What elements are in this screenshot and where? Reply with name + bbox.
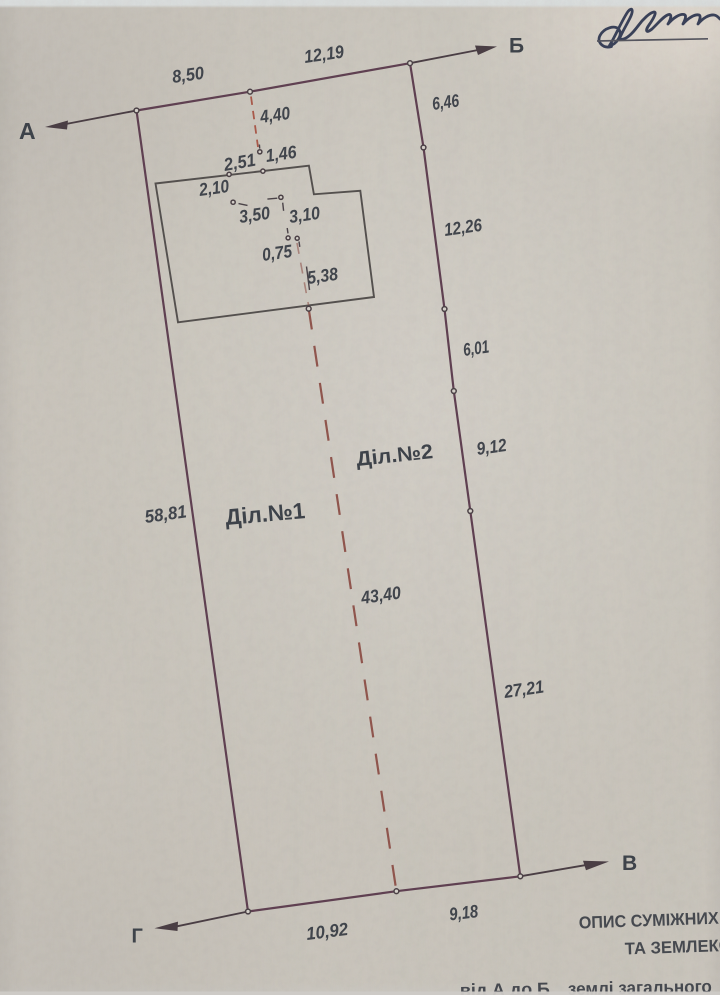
svg-text:ТА ЗЕМЛЕКОР: ТА ЗЕМЛЕКОР xyxy=(624,935,720,958)
svg-text:8,50: 8,50 xyxy=(171,63,205,87)
svg-text:Г: Г xyxy=(132,926,143,948)
svg-text:5,38: 5,38 xyxy=(306,264,339,288)
svg-text:10,92: 10,92 xyxy=(305,919,349,944)
svg-text:27,21: 27,21 xyxy=(502,677,545,702)
svg-text:Діл.№1: Діл.№1 xyxy=(224,498,306,530)
svg-text:6,01: 6,01 xyxy=(462,337,491,360)
svg-text:9,18: 9,18 xyxy=(448,901,479,924)
svg-text:43,40: 43,40 xyxy=(359,583,402,608)
svg-text:А: А xyxy=(19,118,36,144)
svg-text:Б: Б xyxy=(509,35,524,58)
svg-text:4,40: 4,40 xyxy=(258,103,291,127)
svg-text:12,19: 12,19 xyxy=(303,42,345,67)
svg-text:9,12: 9,12 xyxy=(475,435,507,459)
svg-text:1,46: 1,46 xyxy=(264,142,298,166)
svg-text:2,51: 2,51 xyxy=(221,150,257,175)
svg-text:В: В xyxy=(622,852,637,875)
svg-text:ОПИС СУМІЖНИХ: ОПИС СУМІЖНИХ xyxy=(578,909,719,933)
svg-text:2,10: 2,10 xyxy=(197,176,230,200)
svg-text:58,81: 58,81 xyxy=(143,501,187,527)
svg-text:0,75: 0,75 xyxy=(261,241,294,265)
svg-text:6,46: 6,46 xyxy=(431,90,461,114)
svg-text:12,26: 12,26 xyxy=(443,215,484,240)
svg-text:3,50: 3,50 xyxy=(238,203,271,227)
svg-text:Діл.№2: Діл.№2 xyxy=(355,440,434,471)
svg-text:3,10: 3,10 xyxy=(288,203,321,227)
